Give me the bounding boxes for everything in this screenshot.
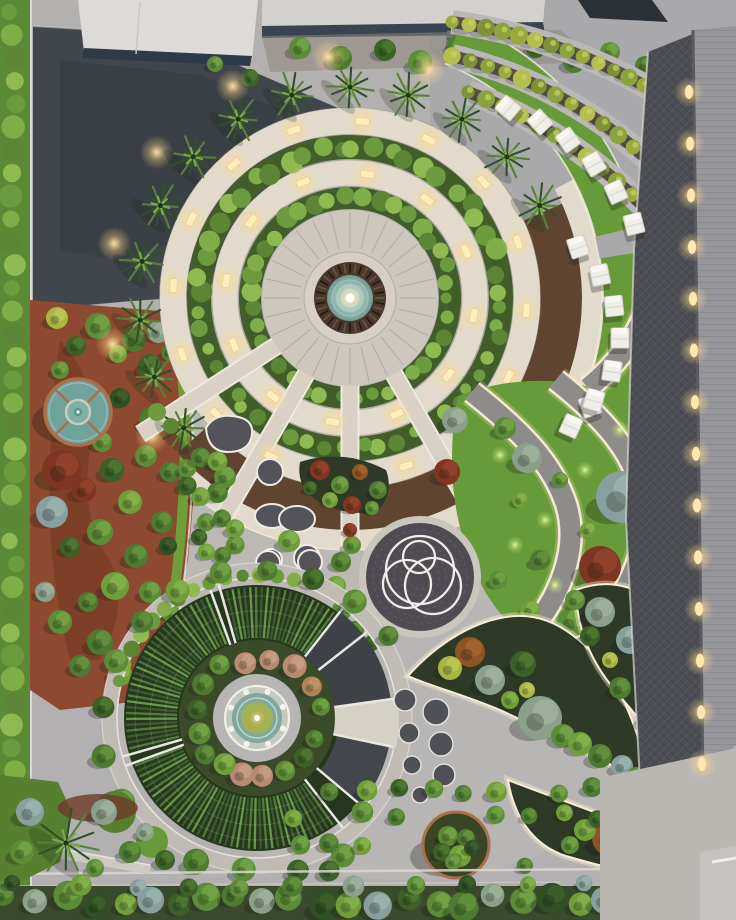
- shrub-texture: [378, 48, 387, 57]
- tree-texture: [606, 491, 627, 512]
- tree-texture: [526, 713, 544, 731]
- terrace-hedge-tip: [582, 52, 588, 58]
- hedge-shrub: [6, 72, 24, 90]
- palm-crown: [504, 154, 509, 159]
- hedge-shrub: [487, 266, 505, 284]
- shrub-texture: [372, 488, 379, 495]
- hedge-shrub: [2, 739, 21, 758]
- ground-light-green: [576, 461, 594, 479]
- deck-planter: [228, 705, 234, 711]
- eave-light: [696, 654, 704, 668]
- shrub-texture: [218, 475, 227, 484]
- row-tree-texture: [347, 884, 356, 893]
- planter-plant-texture: [460, 836, 467, 843]
- hedge-shrub: [493, 300, 506, 313]
- hedge-shrub: [319, 193, 335, 209]
- hedge-shrub: [364, 137, 384, 157]
- tree-texture: [492, 578, 499, 585]
- tree-texture: [578, 828, 587, 837]
- paver-dot: [423, 699, 449, 725]
- terrace-hedge-tip: [504, 67, 510, 73]
- hedge-shrub: [3, 164, 21, 182]
- hedge-shrub: [0, 506, 24, 530]
- tree-texture: [170, 588, 180, 598]
- ground-light-green: [546, 576, 564, 594]
- eave-light: [698, 757, 706, 771]
- tree-texture: [613, 686, 622, 695]
- center-fountain: [254, 715, 260, 721]
- hedge-shrub: [234, 401, 246, 413]
- hedge-shrub: [388, 435, 405, 452]
- terrace-hedge-tip: [451, 51, 457, 57]
- row-tree-texture: [410, 883, 417, 890]
- terrace-hedge-tip: [628, 72, 634, 78]
- row-tree-texture: [340, 902, 350, 912]
- hedge-shrub: [3, 393, 23, 413]
- hedge-shrub: [1, 533, 17, 549]
- hedge-shrub: [231, 188, 250, 207]
- path-light-paver: [355, 117, 369, 125]
- path-light-paver: [325, 417, 340, 426]
- hedge-shrub: [441, 293, 452, 304]
- terrace-hedge-tip: [613, 65, 619, 71]
- hedge-shrub: [232, 388, 246, 402]
- terrace-hedge-tip: [550, 40, 556, 46]
- tree-texture: [287, 664, 297, 674]
- eave-light: [690, 343, 698, 357]
- hedge-shrub: [8, 556, 25, 573]
- shrub-texture: [288, 816, 295, 823]
- palm-crown: [191, 154, 196, 159]
- row-tree-texture: [369, 903, 380, 914]
- tree-texture: [188, 859, 198, 869]
- paved-pad-bean: [206, 416, 252, 452]
- hedge-shrub: [5, 48, 25, 68]
- tree-texture: [135, 619, 144, 628]
- hedge-shrub: [385, 197, 402, 214]
- tree-texture: [50, 466, 66, 482]
- shrub-texture: [295, 843, 303, 851]
- terrace-hedge-tip: [469, 56, 475, 62]
- terrace-hedge-tip: [602, 119, 608, 125]
- row-tree-texture: [27, 899, 37, 909]
- row-tree-texture: [133, 886, 140, 893]
- tree-texture: [515, 661, 525, 671]
- row-tree-texture: [542, 895, 554, 907]
- tree-texture: [593, 753, 603, 763]
- paver-dot: [399, 723, 419, 743]
- tree-texture: [279, 769, 287, 777]
- terrace-hedge-tip: [632, 142, 638, 148]
- hedge-shrub: [353, 188, 371, 206]
- shrub-texture: [356, 810, 365, 819]
- tree-texture: [106, 583, 117, 594]
- tree-texture: [569, 598, 577, 606]
- row-tree-texture: [454, 903, 466, 915]
- tree-texture: [534, 558, 542, 566]
- hedge-shrub: [210, 213, 231, 234]
- tree-texture: [50, 316, 59, 325]
- hedge-shrub: [4, 600, 24, 620]
- row-tree-texture: [485, 893, 494, 902]
- tree-texture: [214, 570, 223, 579]
- row-tree-texture: [198, 894, 209, 905]
- tree-texture: [564, 843, 571, 850]
- hedge-shrub: [1, 115, 24, 138]
- tree-texture: [42, 508, 55, 521]
- tree-texture: [347, 599, 357, 609]
- palm-crown: [181, 425, 186, 430]
- shrub-texture: [524, 814, 531, 821]
- hedge-shrub: [480, 351, 493, 364]
- tree-texture: [139, 830, 146, 837]
- tree-texture: [97, 705, 106, 714]
- tree-texture: [92, 529, 102, 539]
- shrub-texture: [324, 790, 331, 797]
- hedge-shrub: [369, 439, 385, 455]
- tree-texture: [335, 853, 345, 863]
- row-tree-texture: [74, 883, 83, 892]
- paver-dot: [403, 756, 421, 774]
- rim-hedge-shrub: [237, 570, 249, 582]
- hedge-shrub: [394, 150, 413, 169]
- hedge-shrub: [336, 187, 354, 205]
- hedge-shrub: [1, 24, 23, 46]
- hedge-shrub: [7, 418, 24, 435]
- eave-light: [694, 550, 702, 564]
- deck-planter: [228, 726, 234, 732]
- hedge-shrub: [299, 434, 314, 449]
- hedge-shrub: [247, 254, 264, 271]
- shrub-texture: [592, 817, 599, 824]
- hedge-shrub: [405, 365, 420, 380]
- tree-texture: [218, 762, 227, 771]
- row-tree-texture: [432, 901, 442, 911]
- fountain-jet: [346, 294, 355, 303]
- deck-planter: [280, 704, 286, 710]
- hedge-shrub: [464, 208, 483, 227]
- tree-texture: [143, 590, 152, 599]
- tree-texture: [155, 520, 164, 529]
- row-tree-texture: [402, 896, 411, 905]
- tree-texture: [64, 545, 72, 553]
- shrub-texture: [334, 483, 341, 490]
- tree-texture: [53, 619, 63, 629]
- deck-planter: [264, 689, 270, 695]
- terrace-hedge-tip: [485, 23, 491, 29]
- shrub-texture: [201, 550, 208, 557]
- shrub-mound-texture: [282, 539, 291, 548]
- hedge-shrub: [271, 358, 287, 374]
- tree-texture: [591, 609, 603, 621]
- tree-texture: [129, 553, 139, 563]
- shrub: [163, 418, 179, 434]
- shrub-texture: [306, 486, 312, 492]
- hedge-shrub: [282, 429, 298, 445]
- tree-texture: [584, 634, 592, 642]
- ground-light-green: [506, 536, 524, 554]
- tree-texture: [461, 649, 473, 661]
- tree-texture: [196, 682, 205, 691]
- tree-texture: [70, 344, 78, 352]
- hedge-shrub: [5, 692, 25, 712]
- path-light: [360, 170, 375, 179]
- row-tree-texture: [579, 881, 585, 887]
- palm-crown: [152, 374, 157, 379]
- shrub-texture: [194, 455, 202, 463]
- hedge-shrub: [436, 330, 453, 347]
- row-tree-texture: [573, 902, 582, 911]
- tree-texture: [96, 754, 106, 764]
- shrub-texture: [181, 484, 189, 492]
- shrub-texture: [195, 494, 203, 502]
- eave-light: [689, 292, 697, 306]
- tree-texture: [605, 658, 611, 664]
- shrub-texture: [211, 459, 219, 467]
- shrub-texture: [361, 788, 369, 796]
- terrace-hedge-tip: [451, 17, 457, 23]
- terrace-hedge-tip: [487, 61, 493, 67]
- row-tree-texture: [233, 886, 240, 893]
- path-light: [325, 417, 340, 426]
- shrub-texture: [368, 506, 374, 512]
- planter-plant-texture: [467, 846, 473, 852]
- hedge-shrub: [3, 371, 22, 390]
- paver-dot: [394, 689, 416, 711]
- shrub-texture: [391, 815, 398, 822]
- palm-crown: [63, 840, 68, 845]
- hedge-shrub: [441, 310, 454, 323]
- terrace-hedge-tip: [485, 94, 491, 100]
- path-light-paver: [360, 170, 375, 179]
- deck-planter: [265, 741, 271, 747]
- tree-texture: [162, 544, 169, 551]
- ground-light-green: [491, 446, 509, 464]
- hedge-shrub: [342, 141, 359, 158]
- crop-row: [259, 798, 260, 849]
- shrub-texture: [554, 792, 561, 799]
- eave-light: [685, 85, 693, 99]
- rim-hedge-shrub: [113, 675, 125, 687]
- path-light: [469, 308, 478, 323]
- shrub-texture: [323, 841, 331, 849]
- tree-texture: [583, 528, 589, 534]
- shrub-texture: [346, 543, 353, 550]
- tree-texture: [239, 661, 248, 670]
- palm-crown: [158, 203, 163, 208]
- shrub-texture: [335, 560, 343, 568]
- hedge-shrub: [311, 387, 327, 403]
- tree-texture: [159, 858, 167, 866]
- tree-texture: [306, 684, 314, 692]
- shrub-texture: [211, 490, 219, 498]
- shrub-texture: [357, 844, 364, 851]
- hedge-shrub: [192, 306, 205, 319]
- palm-crown: [138, 317, 143, 322]
- path-light-paver: [469, 308, 478, 323]
- hedge-shrub: [4, 461, 27, 484]
- hedge-shrub: [2, 139, 24, 161]
- tree-texture: [73, 664, 82, 673]
- tree-texture: [315, 705, 322, 712]
- shrub-texture: [314, 468, 322, 476]
- row-tree-texture: [515, 898, 526, 909]
- tree-texture: [77, 487, 87, 497]
- tree-texture: [522, 688, 528, 694]
- shrub-texture: [394, 786, 401, 793]
- palm-crown: [236, 116, 241, 121]
- tree-texture: [90, 323, 100, 333]
- terrace-hedge-tip: [597, 58, 603, 64]
- hedge-shrub: [449, 184, 467, 202]
- hedge-shrub: [3, 437, 26, 460]
- tree-texture: [587, 562, 604, 579]
- terrace-hedge-tip: [617, 130, 623, 136]
- hedge-shrub: [202, 343, 214, 355]
- shrub-texture: [293, 46, 302, 55]
- terrace-hedge-tip: [566, 46, 572, 52]
- hedge-shrub: [4, 280, 20, 296]
- tree-texture: [114, 396, 122, 404]
- hedge-shrub: [437, 275, 453, 291]
- tree-texture: [573, 741, 583, 751]
- tree-texture: [89, 866, 96, 873]
- crop-row: [255, 798, 256, 849]
- tree-texture: [498, 426, 507, 435]
- hedge-shrub: [1, 644, 25, 668]
- terrace-hedge-tip: [554, 90, 560, 96]
- path-light: [355, 117, 369, 125]
- hedge-shrub: [317, 441, 331, 455]
- terrace-hedge-tip: [534, 35, 540, 41]
- row-tree-texture: [523, 883, 529, 889]
- terrace-hedge-tip: [538, 81, 544, 87]
- tree-texture: [518, 455, 530, 467]
- terrace-hedge-tip: [501, 26, 507, 32]
- tree-texture: [21, 809, 32, 820]
- planter-plant-texture: [442, 834, 450, 842]
- row-tree-texture: [254, 898, 264, 908]
- tree-texture: [555, 478, 561, 484]
- hedge-shrub: [4, 323, 26, 345]
- palm-frond: [408, 73, 409, 96]
- shrub-texture: [323, 869, 331, 877]
- eave-light: [693, 499, 701, 513]
- hedge-shrub: [190, 320, 207, 337]
- terrace-hedge-tip: [468, 20, 474, 26]
- hedge-shrub: [433, 242, 449, 258]
- tree-texture: [298, 755, 306, 763]
- tree-texture: [123, 850, 132, 859]
- shrub-texture: [490, 790, 498, 798]
- scene-canvas: [0, 0, 736, 920]
- hedge-shrub: [358, 437, 372, 451]
- planter-plant-texture: [436, 850, 443, 857]
- shrub-texture: [559, 811, 566, 818]
- hedge-shrub: [7, 95, 26, 114]
- row-tree-texture: [119, 902, 128, 911]
- tree-texture: [615, 764, 624, 773]
- deck-planter: [243, 689, 249, 695]
- path-light-paver: [522, 303, 530, 317]
- palm-crown: [459, 116, 464, 121]
- tree-texture: [306, 577, 315, 586]
- eave-light: [691, 395, 699, 409]
- deck-planter: [244, 741, 250, 747]
- path-light-paver: [222, 273, 231, 288]
- palm-crown: [406, 93, 411, 98]
- terrace-hedge-tip: [586, 108, 592, 114]
- tree-texture: [309, 737, 316, 744]
- hedge-shrub: [249, 409, 266, 426]
- tree-texture: [193, 731, 202, 740]
- row-tree-texture: [142, 897, 153, 908]
- hedge-shrub: [0, 714, 23, 737]
- shrub-texture: [346, 528, 352, 534]
- hedge-shrub: [188, 268, 206, 286]
- shrub-texture: [458, 792, 465, 799]
- tree-texture: [439, 469, 449, 479]
- tree-texture: [234, 772, 244, 782]
- eave-light: [697, 705, 705, 719]
- outer-ring-light: [412, 52, 446, 86]
- hedge-shrub: [2, 210, 19, 227]
- planter-plant-texture: [448, 860, 454, 866]
- hedge-shrub: [473, 369, 485, 381]
- terrace-hedge-tip: [467, 87, 473, 93]
- hedge-shrub: [1, 576, 23, 598]
- shrub-texture: [216, 516, 223, 523]
- tree-texture: [263, 658, 271, 666]
- tree-texture: [92, 639, 102, 649]
- hedge-shrub: [491, 329, 507, 345]
- tree-texture: [447, 417, 457, 427]
- eave-light: [688, 240, 696, 254]
- row-tree-texture: [7, 881, 13, 887]
- row-tree-texture: [286, 884, 294, 892]
- paved-pad: [257, 459, 283, 485]
- tree-texture: [199, 752, 207, 760]
- terrace-hedge-tip: [521, 74, 527, 80]
- terrace-hedge-tip: [518, 30, 524, 36]
- row-tree-texture: [462, 882, 469, 889]
- tree-texture: [164, 470, 172, 478]
- hedge-shrub: [314, 137, 333, 156]
- tree-texture: [54, 368, 61, 375]
- tree-texture: [123, 499, 133, 509]
- path-light: [222, 273, 231, 288]
- palm-crown: [347, 84, 352, 89]
- shrub-texture: [490, 813, 497, 820]
- path-light-paver: [169, 278, 177, 292]
- hedge-shrub: [7, 347, 27, 367]
- sun-lounger-back: [613, 328, 627, 334]
- tree-texture: [213, 662, 221, 670]
- eave-light: [687, 188, 695, 202]
- hedge-shrub: [199, 231, 220, 252]
- row-tree-texture: [183, 885, 190, 892]
- hedge-shrub: [1, 667, 25, 691]
- shrub-texture: [210, 62, 216, 68]
- ground-light-green: [611, 421, 629, 439]
- tree-texture: [515, 498, 521, 504]
- paved-pad-blob: [279, 506, 315, 532]
- shrub-texture: [229, 543, 236, 550]
- path-light: [169, 278, 177, 292]
- tree-texture: [96, 809, 106, 819]
- sun-lounger: [601, 295, 625, 323]
- terrace-hedge-tip: [571, 99, 577, 105]
